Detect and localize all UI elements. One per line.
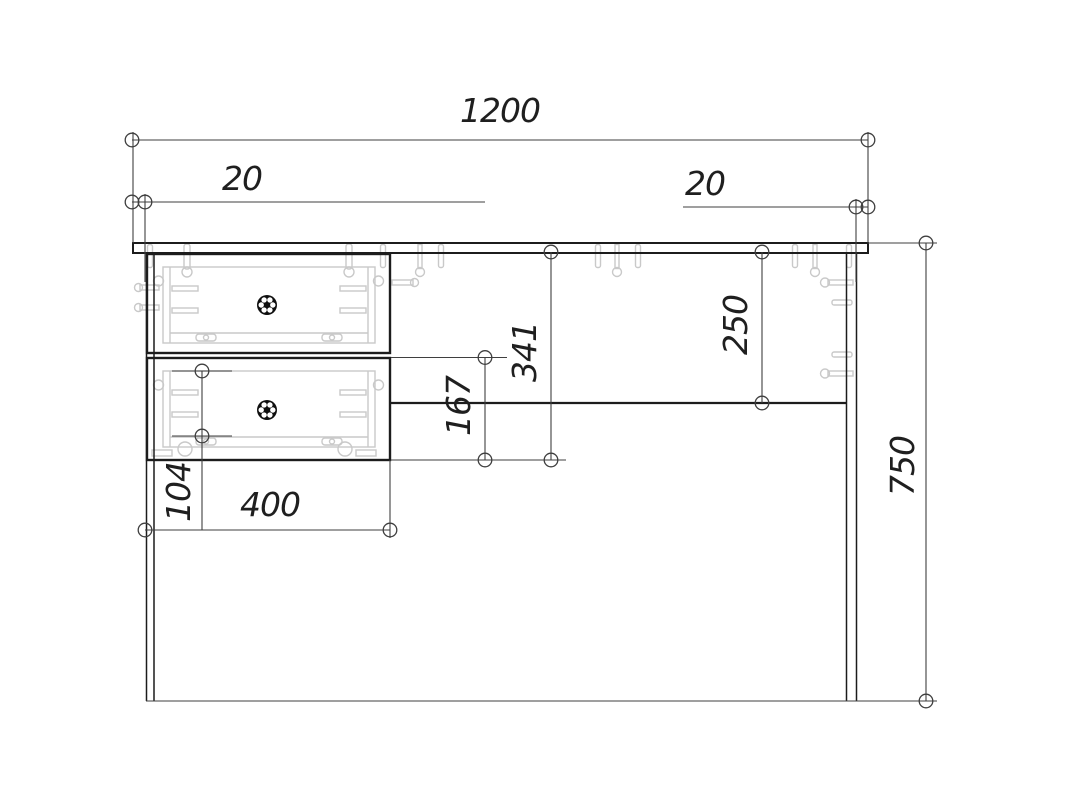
- dim-label-overhang-left: 20: [222, 159, 262, 198]
- dim-label-drawer-block-width: 400: [240, 485, 300, 524]
- tabletop: [133, 243, 868, 253]
- dim-label-overall-height: 750: [883, 436, 922, 496]
- dim-label-drawer-block-height: 341: [505, 322, 544, 382]
- hidden-cam-screws-right-leg: [821, 278, 854, 378]
- right-leg: [847, 253, 857, 701]
- dimension-overall-height: 750: [883, 236, 933, 708]
- dim-label-overhang-right: 20: [685, 164, 725, 203]
- dim-label-base-offset: 104: [159, 462, 198, 522]
- drawer-1-dowels: [182, 244, 354, 277]
- drawer-knob-icon: [257, 295, 277, 315]
- dimension-overhang-left: 20: [125, 159, 485, 209]
- drawing-canvas: 1200 20 20 750 341 167 250: [0, 0, 1067, 800]
- hidden-cam-screw-drawer-side: [392, 279, 419, 287]
- dimension-back-rail-depth: 250: [716, 245, 769, 410]
- dimension-overhang-right: 20: [683, 164, 875, 214]
- dimension-drawer-block-height: 341: [505, 245, 558, 467]
- drawer-knob-icon: [257, 400, 277, 420]
- hidden-dowel-pins: [148, 245, 852, 268]
- drawer-2-feet: [152, 442, 376, 456]
- dimension-overall-width: 1200: [125, 91, 875, 147]
- dim-label-back-rail-depth: 250: [716, 295, 755, 355]
- desk-structure: [133, 243, 868, 701]
- dim-label-lower-drawer-height: 167: [439, 375, 478, 436]
- dim-label-overall-width: 1200: [460, 91, 540, 130]
- extension-lines: [133, 132, 937, 701]
- dimension-lower-drawer-height: 167: [439, 351, 492, 467]
- desk-technical-drawing: 1200 20 20 750 341 167 250: [0, 0, 1067, 800]
- hidden-vertical-screws: [416, 245, 820, 277]
